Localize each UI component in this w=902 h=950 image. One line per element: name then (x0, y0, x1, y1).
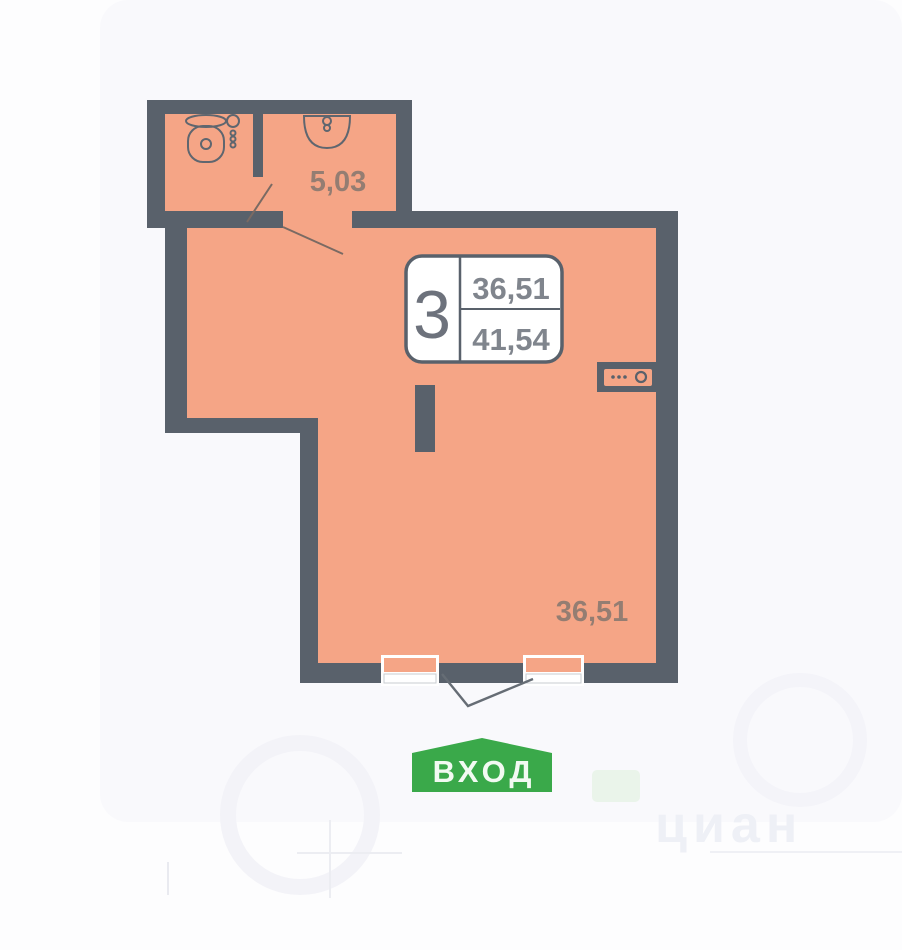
watermark-text: циан (655, 796, 803, 854)
unit-info-badge: 3 36,51 41,54 (406, 256, 562, 362)
wall-step-horizontal (165, 418, 300, 433)
bathroom-floor (150, 100, 412, 228)
wall-main-left (165, 211, 187, 433)
floor-plan-canvas: циан (0, 0, 902, 950)
floor-plan-page: циан (0, 0, 902, 950)
entrance-door-left (381, 655, 439, 686)
wall-bathroom-partition (253, 114, 263, 177)
electric-panel-icon (597, 362, 659, 392)
entrance-label: ВХОД (433, 754, 536, 789)
unit-area-bottom: 41,54 (472, 322, 550, 357)
structural-column (415, 385, 435, 452)
wall-bottom (300, 663, 678, 683)
main-area-label: 36,51 (556, 596, 629, 628)
wall-main-right (656, 211, 678, 683)
wall-bathroom-top (150, 100, 412, 114)
wall-step-vertical (300, 418, 318, 683)
wall-bathroom-right (396, 100, 412, 215)
entrance-door-right (523, 655, 584, 686)
unit-rooms-count: 3 (413, 277, 451, 353)
watermark-logo-square (592, 770, 640, 802)
wall-top-right-segment (352, 211, 678, 228)
bathroom-area-label: 5,03 (310, 166, 366, 198)
wall-bathroom-left (147, 100, 165, 228)
unit-area-top: 36,51 (472, 271, 550, 306)
